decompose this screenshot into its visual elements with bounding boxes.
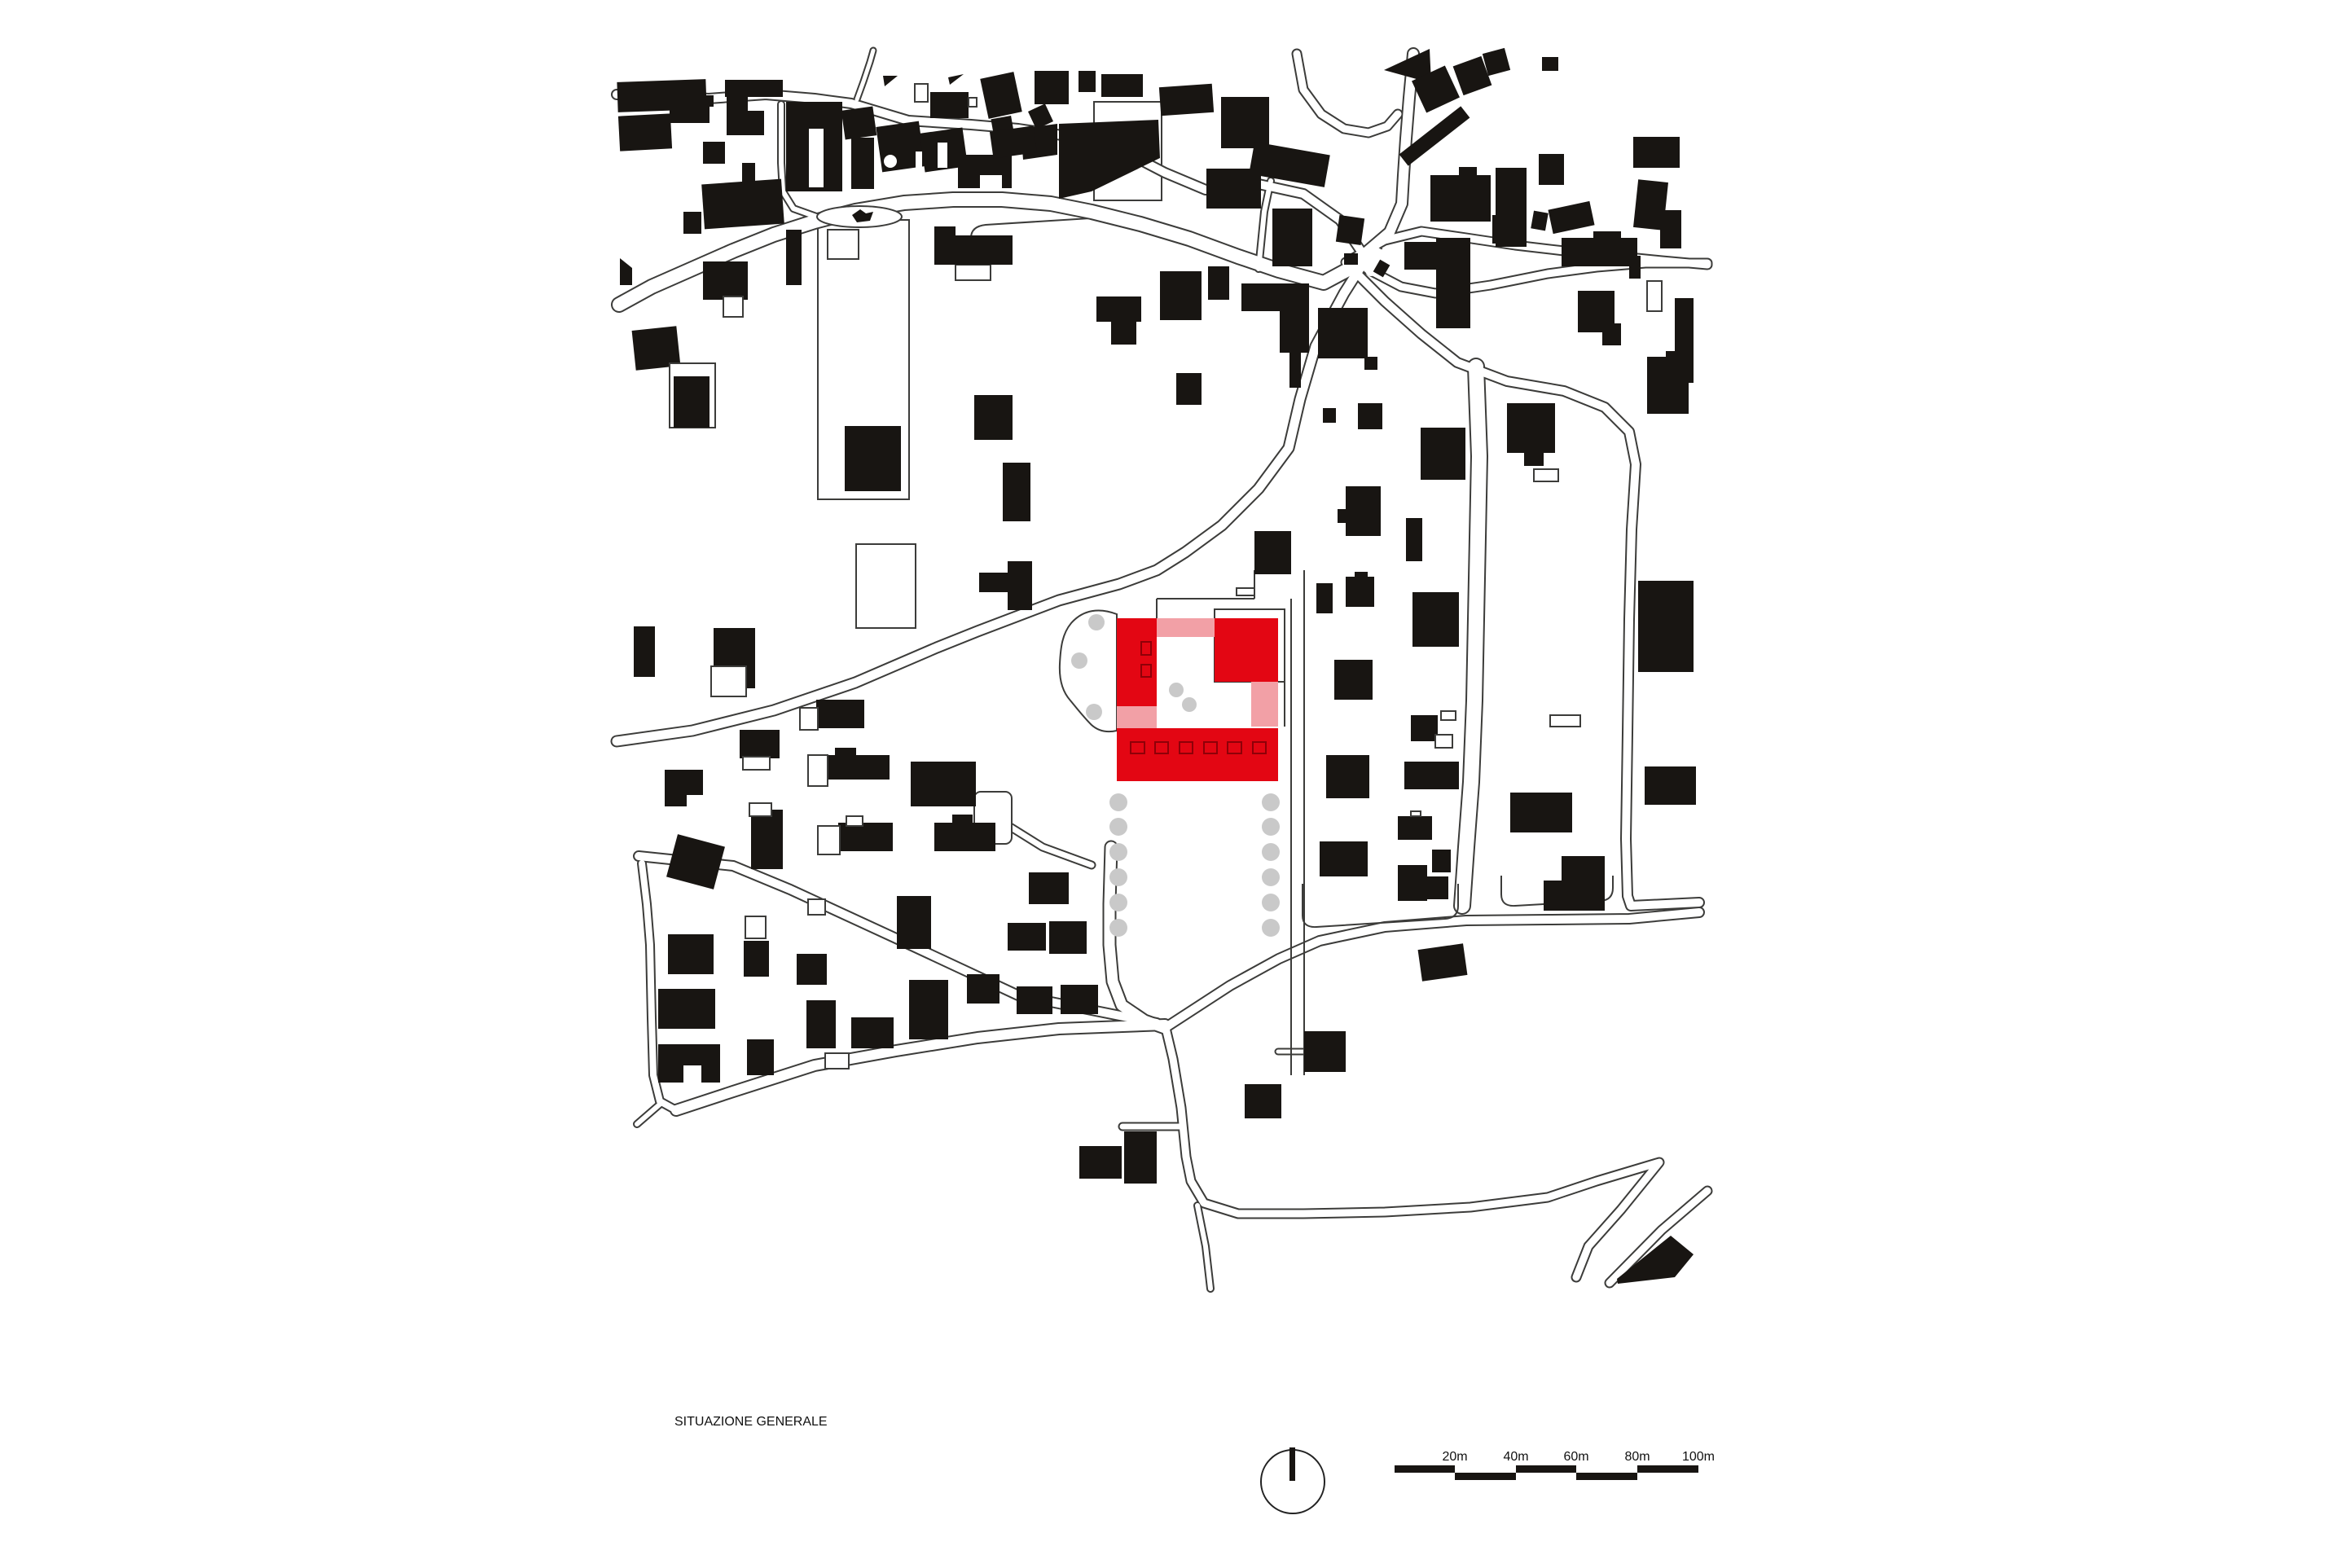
svg-text:40m: 40m <box>1503 1450 1528 1464</box>
svg-text:60m: 60m <box>1563 1450 1588 1464</box>
svg-text:20m: 20m <box>1442 1450 1467 1464</box>
svg-text:SITUAZIONE GENERALE: SITUAZIONE GENERALE <box>674 1415 828 1429</box>
svg-text:80m: 80m <box>1624 1450 1650 1464</box>
svg-text:100m: 100m <box>1682 1450 1715 1464</box>
